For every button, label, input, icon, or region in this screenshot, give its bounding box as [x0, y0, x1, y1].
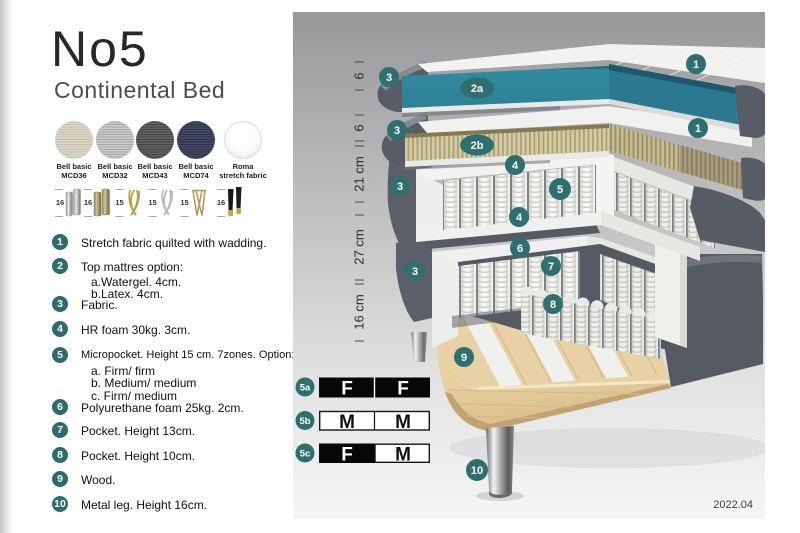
- svg-text:16: 16: [56, 198, 64, 207]
- svg-text:2a: 2a: [471, 83, 484, 95]
- svg-text:16: 16: [217, 198, 225, 207]
- svg-text:F: F: [341, 445, 353, 466]
- svg-text:5a: 5a: [300, 383, 311, 394]
- svg-text:F: F: [397, 379, 409, 400]
- svg-text:7: 7: [548, 261, 554, 273]
- svg-text:5: 5: [557, 184, 563, 196]
- svg-text:8: 8: [550, 299, 556, 311]
- svg-text:3: 3: [412, 266, 418, 278]
- svg-text:6: 6: [352, 124, 367, 131]
- svg-text:15: 15: [180, 198, 188, 207]
- svg-text:4: 4: [512, 160, 519, 172]
- svg-text:16: 16: [84, 198, 92, 207]
- svg-text:5c: 5c: [300, 449, 311, 460]
- svg-text:27 cm: 27 cm: [352, 229, 367, 264]
- svg-text:10: 10: [471, 465, 483, 477]
- svg-text:2022.04: 2022.04: [713, 499, 753, 511]
- svg-text:2b: 2b: [471, 140, 484, 152]
- svg-text:6: 6: [517, 243, 523, 255]
- svg-text:5b: 5b: [299, 416, 310, 427]
- svg-text:3: 3: [394, 125, 400, 137]
- svg-text:M: M: [395, 412, 411, 433]
- svg-text:1: 1: [693, 59, 699, 71]
- svg-text:3: 3: [397, 181, 403, 193]
- svg-text:F: F: [341, 379, 353, 400]
- svg-text:15: 15: [148, 198, 156, 207]
- svg-text:21 cm: 21 cm: [352, 156, 367, 191]
- svg-text:15: 15: [115, 198, 123, 207]
- svg-text:9: 9: [461, 352, 467, 364]
- svg-text:6: 6: [352, 72, 367, 79]
- svg-text:M: M: [395, 445, 411, 466]
- svg-text:1: 1: [695, 123, 701, 135]
- svg-text:16 cm: 16 cm: [352, 294, 367, 329]
- svg-text:M: M: [339, 412, 355, 433]
- svg-text:3: 3: [386, 72, 392, 84]
- svg-text:4: 4: [516, 212, 523, 224]
